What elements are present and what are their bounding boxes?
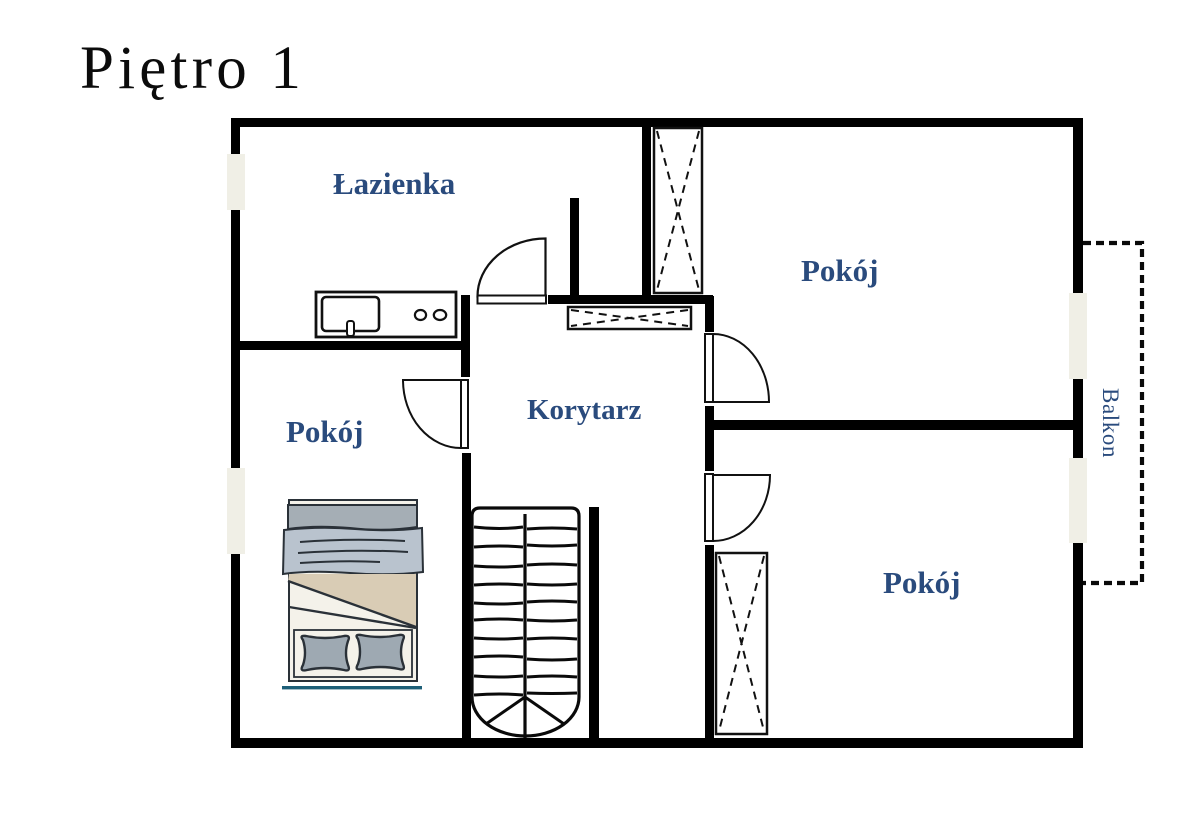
- svg-text:Pokój: Pokój: [286, 414, 364, 449]
- svg-text:Łazienka: Łazienka: [333, 166, 456, 201]
- svg-text:Piętro 1: Piętro 1: [80, 35, 305, 102]
- svg-text:Balkon: Balkon: [1098, 388, 1123, 458]
- svg-text:Korytarz: Korytarz: [527, 394, 641, 426]
- svg-text:Pokój: Pokój: [883, 565, 961, 600]
- svg-text:Pokój: Pokój: [801, 253, 879, 288]
